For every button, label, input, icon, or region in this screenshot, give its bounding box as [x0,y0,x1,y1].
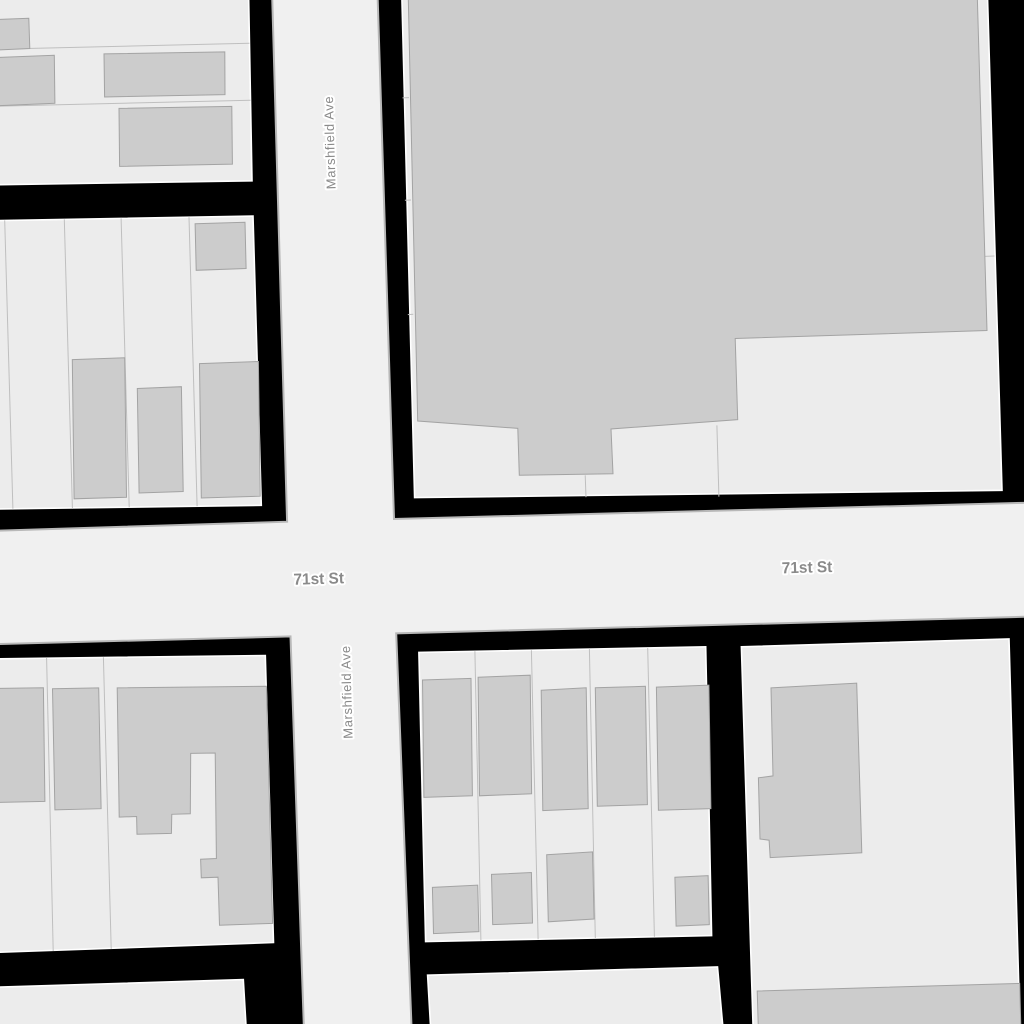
svg-text:71st St: 71st St [782,559,834,577]
svg-text:Marshfield Ave: Marshfield Ave [338,645,356,739]
svg-text:71st St: 71st St [293,570,345,588]
svg-text:Marshfield Ave: Marshfield Ave [321,96,339,190]
